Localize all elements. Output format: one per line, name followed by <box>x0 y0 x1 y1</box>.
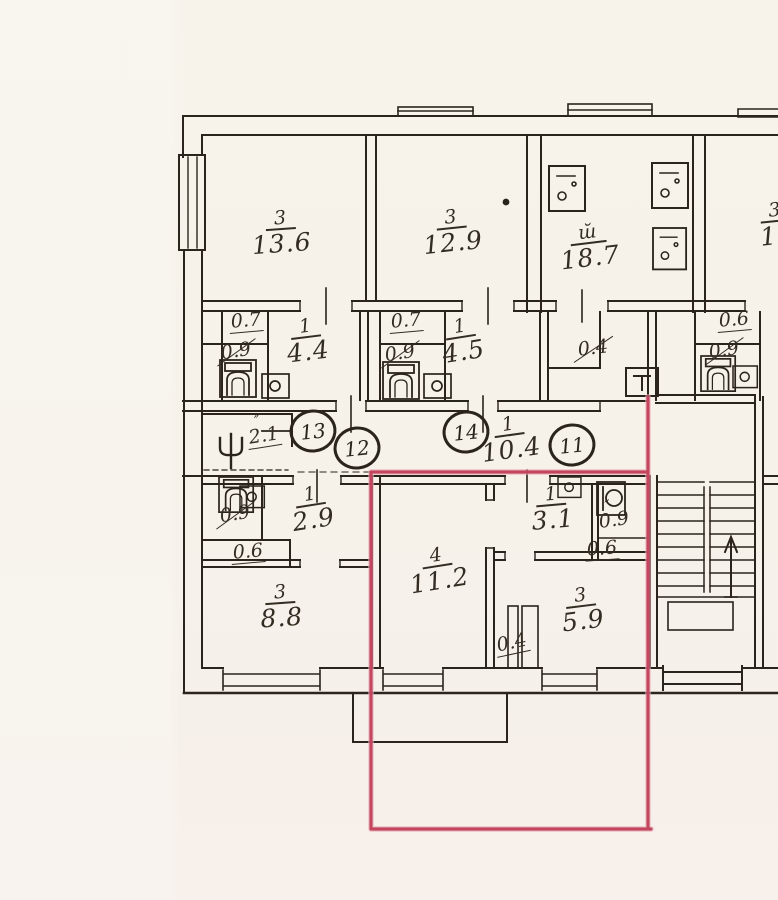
sink-icon <box>733 366 757 388</box>
appliance-icon <box>652 163 688 208</box>
room-label-hall-4-4: 14.4 <box>283 315 331 368</box>
area-label: 0.7 <box>228 310 264 334</box>
area-label: 0.4 <box>575 337 611 361</box>
stairs-up-arrow-icon <box>725 537 737 597</box>
appliance-icon <box>653 228 686 269</box>
toilet-icon <box>220 360 256 397</box>
coat-rack-icon <box>220 434 242 468</box>
stairwell <box>650 397 763 668</box>
room-label-hall-4-5: 14.5 <box>437 314 487 368</box>
area-label: 0.6 <box>716 309 752 333</box>
floor-plan-drawing <box>0 0 778 900</box>
toilet-icon <box>383 362 419 399</box>
room-area: 3.1 <box>530 505 575 535</box>
room-area: 4.5 <box>440 335 486 368</box>
area-label: 0.7 <box>388 310 424 334</box>
room-area: 8.8 <box>259 603 304 632</box>
room-area: 4.4 <box>285 336 331 368</box>
room-label-room-8-8: 38.8 <box>258 582 304 633</box>
balcony <box>353 693 507 742</box>
stair-landing <box>668 602 733 630</box>
room-area: 15 <box>759 221 778 251</box>
area-label: 0.6 <box>230 541 266 565</box>
room-area: 5.9 <box>560 605 606 637</box>
area-label: 0.6 <box>584 538 620 561</box>
room-area: 2.9 <box>290 503 336 536</box>
room-label-room-13-6: 313.6 <box>250 207 313 259</box>
right-partial-walls <box>763 476 778 484</box>
sink-icon <box>424 374 451 398</box>
room-label-hall-2-9: 12.9 <box>287 482 337 536</box>
ink-speck <box>503 199 510 206</box>
room-label-room-12-9: 312.9 <box>420 205 484 259</box>
bottom-wall-windows <box>223 666 742 690</box>
sink-icon <box>262 374 289 398</box>
room-area: 12.9 <box>422 226 484 259</box>
room-area: 13.6 <box>251 228 312 259</box>
electrical-panel-icon <box>626 368 658 396</box>
room-area: 18.7 <box>559 241 621 275</box>
room-label-kitchen-18-7: ш̆18.7 <box>556 220 621 275</box>
room-label-room-5-9: 35.9 <box>558 584 606 637</box>
room-label-room-11-2: 411.2 <box>405 542 471 599</box>
stair-treads <box>657 482 755 597</box>
room-number: 3 <box>759 200 778 224</box>
room-label-hall-3-1: 13.1 <box>529 483 576 534</box>
scanned-floor-plan-page: 313.6312.9ш̆18.731514.414.5110.412.938.8… <box>0 0 778 900</box>
appliance-icon <box>549 166 585 211</box>
